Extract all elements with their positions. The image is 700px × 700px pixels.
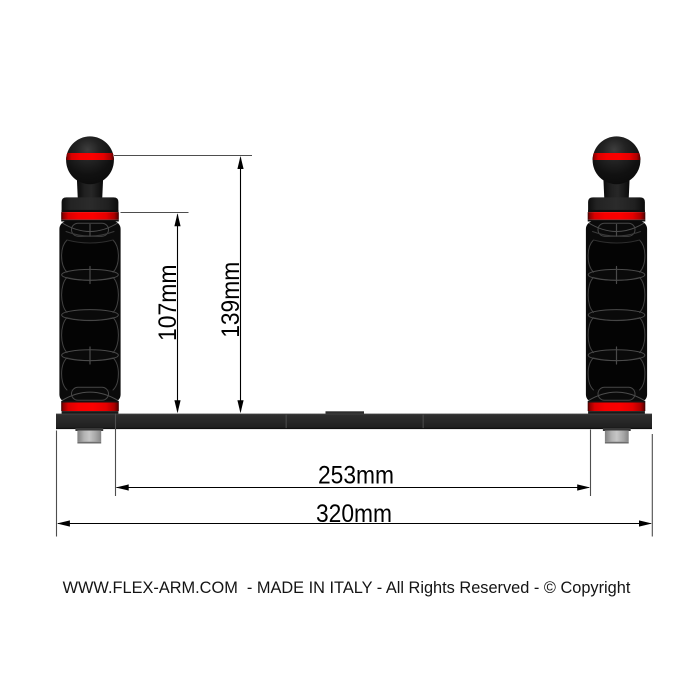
svg-text:WWW.FLEX-ARM.COM - MADE IN IT: WWW.FLEX-ARM.COM - MADE IN ITALY - All R…	[63, 579, 631, 597]
svg-text:320mm: 320mm	[316, 500, 392, 528]
svg-text:107mm: 107mm	[154, 265, 182, 342]
svg-text:253mm: 253mm	[318, 461, 394, 489]
svg-text:139mm: 139mm	[217, 262, 245, 338]
